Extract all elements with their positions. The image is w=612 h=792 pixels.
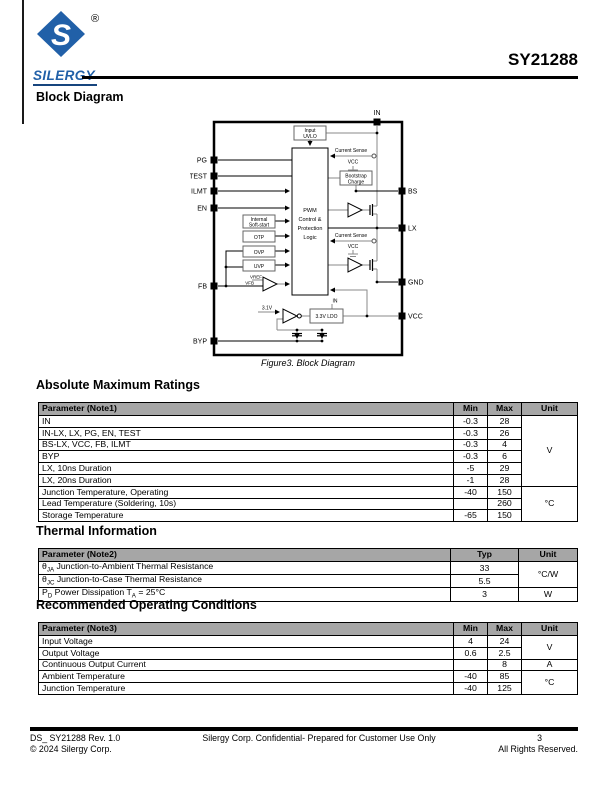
table-cell: LX, 20ns Duration (39, 474, 454, 486)
table-cell: 0.6 (454, 647, 488, 659)
table-cell: °C (522, 486, 578, 521)
table-cell: 150 (488, 486, 522, 498)
table-cell: -0.3 (454, 439, 488, 451)
table-cell: θJC Junction-to-Case Thermal Resistance (39, 575, 451, 588)
block-diagram: IN PG TEST ILMT EN FB BYP BS LX GND VCC … (190, 103, 430, 372)
table-cell (454, 659, 488, 671)
pin-label-pg: PG (197, 158, 207, 165)
table-cell: IN-LX, LX, PG, EN, TEST (39, 427, 454, 439)
rec-op-table: Parameter (Note3)MinMaxUnitInput Voltage… (38, 622, 578, 695)
table-cell: A (522, 659, 578, 671)
pin-label-fb: FB (198, 284, 207, 291)
pin-label-vcc: VCC (408, 314, 423, 321)
footer-rule (30, 727, 578, 731)
table-cell: IN (39, 416, 454, 428)
logo-letter: S (51, 19, 71, 52)
table-cell: -0.3 (454, 416, 488, 428)
table-row: Lead Temperature (Soldering, 10s)260 (39, 498, 578, 510)
label-bootstrap-2: Charge (348, 180, 365, 186)
table-header-cell: Min (454, 403, 488, 416)
table-cell: V (522, 416, 578, 487)
table-cell: -5 (454, 463, 488, 475)
table-cell: 260 (488, 498, 522, 510)
label-pwm-1: PWM (303, 208, 317, 214)
label-otp: OTP (254, 235, 265, 241)
current-sense-tap-bottom (372, 239, 376, 243)
table-cell: -40 (454, 486, 488, 498)
label-vfb: VFB (245, 281, 254, 286)
table-header-cell: Parameter (Note1) (39, 403, 454, 416)
label-ovp: OVP (254, 250, 265, 256)
table-cell: 3 (451, 588, 519, 601)
table-cell: Lead Temperature (Soldering, 10s) (39, 498, 454, 510)
table-row: BYP-0.36 (39, 451, 578, 463)
table-row: θJC Junction-to-Case Thermal Resistance5… (39, 575, 578, 588)
table-cell: V (522, 636, 578, 660)
footer-left: DS_ SY21288 Rev. 1.0 © 2024 Silergy Corp… (30, 733, 200, 756)
pin-label-bs: BS (408, 189, 418, 196)
table-row: IN-LX, LX, PG, EN, TEST-0.326 (39, 427, 578, 439)
pin-label-gnd: GND (408, 280, 424, 287)
label-pwm-3: Protection (298, 226, 323, 232)
table-cell: Junction Temperature (39, 683, 454, 695)
thermal-table: Parameter (Note2)TypUnitθJA Junction-to-… (38, 548, 578, 602)
heading-thermal: Thermal Information (36, 524, 157, 538)
table-cell: 2.5 (488, 647, 522, 659)
footer-rights: All Rights Reserved. (438, 744, 578, 755)
current-sense-tap-top (372, 154, 376, 158)
table-cell: 5.5 (451, 575, 519, 588)
table-cell: 6 (488, 451, 522, 463)
table-row: Output Voltage0.62.5 (39, 647, 578, 659)
figure-caption: Figure3. Block Diagram (261, 358, 356, 368)
table-cell: 26 (488, 427, 522, 439)
pin-label-in: IN (374, 110, 381, 117)
pin-label-byp: BYP (193, 339, 207, 346)
ldo-comparator (283, 309, 297, 323)
page-edge-line (22, 0, 24, 124)
pin-label-lx: LX (408, 226, 417, 233)
silergy-logo-mark: S ® (33, 10, 111, 62)
table-cell: -1 (454, 474, 488, 486)
table-cell: Storage Temperature (39, 510, 454, 522)
table-cell: 4 (454, 636, 488, 648)
table-cell: -0.3 (454, 427, 488, 439)
label-current-sense-bottom: Current Sense (335, 233, 367, 239)
label-uvp: UVP (254, 264, 265, 270)
heading-abs-max: Absolute Maximum Ratings (36, 378, 200, 392)
footer: DS_ SY21288 Rev. 1.0 © 2024 Silergy Corp… (30, 733, 578, 756)
table-cell (454, 498, 488, 510)
footer-confidential: Silergy Corp. Confidential- Prepared for… (200, 733, 438, 756)
table-row: θJA Junction-to-Ambient Thermal Resistan… (39, 562, 578, 575)
table-header-row: Parameter (Note1)MinMaxUnit (39, 403, 578, 416)
heading-rec-op: Recommended Operating Conditions (36, 598, 257, 612)
table-cell: Ambient Temperature (39, 671, 454, 683)
footer-copyright: © 2024 Silergy Corp. (30, 744, 200, 755)
table-row: Continuous Output Current8A (39, 659, 578, 671)
table-cell: Input Voltage (39, 636, 454, 648)
table-cell: Junction Temperature, Operating (39, 486, 454, 498)
table-row: Storage Temperature-65150 (39, 510, 578, 522)
table-header-cell: Unit (522, 623, 578, 636)
label-vcc-top: VCC (348, 160, 359, 166)
table-row: LX, 10ns Duration-529 (39, 463, 578, 475)
table-header-cell: Max (488, 623, 522, 636)
table-cell: 85 (488, 671, 522, 683)
silergy-logo: S ® SILERGY (33, 10, 153, 86)
table-header-cell: Unit (522, 403, 578, 416)
table-header-cell: Typ (451, 549, 519, 562)
table-cell: -0.3 (454, 451, 488, 463)
table-cell: -40 (454, 683, 488, 695)
table-cell: BYP (39, 451, 454, 463)
table-header-cell: Parameter (Note2) (39, 549, 451, 562)
table-cell: 28 (488, 416, 522, 428)
label-pwm-2: Control & (299, 217, 322, 223)
label-ldo-in: IN (333, 299, 338, 305)
table-header-cell: Min (454, 623, 488, 636)
footer-right: 3 All Rights Reserved. (438, 733, 578, 756)
footer-page-number: 3 (438, 733, 578, 744)
table-cell: 8 (488, 659, 522, 671)
label-softstart-2: Soft-start (249, 223, 270, 229)
table-header-row: Parameter (Note3)MinMaxUnit (39, 623, 578, 636)
table-row: LX, 20ns Duration-128 (39, 474, 578, 486)
label-ldo: 3.3V LDO (316, 314, 338, 320)
table-row: IN-0.328V (39, 416, 578, 428)
header-rule (82, 76, 578, 79)
table-cell: BS-LX, VCC, FB, ILMT (39, 439, 454, 451)
table-row: BS-LX, VCC, FB, ILMT-0.34 (39, 439, 578, 451)
gate-driver-bottom (348, 258, 362, 272)
heading-block-diagram: Block Diagram (36, 90, 124, 104)
pin-label-en: EN (197, 206, 207, 213)
error-comparator (263, 277, 277, 291)
table-row: Ambient Temperature-4085°C (39, 671, 578, 683)
label-pwm-4: Logic (303, 235, 316, 241)
table-cell: 150 (488, 510, 522, 522)
table-cell: -65 (454, 510, 488, 522)
table-header-cell: Parameter (Note3) (39, 623, 454, 636)
table-row: Junction Temperature, Operating-40150°C (39, 486, 578, 498)
pin-label-ilmt: ILMT (191, 189, 208, 196)
comparator-bubble (297, 314, 301, 318)
part-number-title: SY21288 (508, 50, 578, 70)
registered-mark: ® (91, 13, 99, 25)
abs-max-table: Parameter (Note1)MinMaxUnitIN-0.328VIN-L… (38, 402, 578, 522)
table-cell: -40 (454, 671, 488, 683)
table-cell: 33 (451, 562, 519, 575)
table-header-cell: Unit (519, 549, 578, 562)
table-cell: Continuous Output Current (39, 659, 454, 671)
table-cell: 125 (488, 683, 522, 695)
table-cell: W (519, 588, 578, 601)
table-cell: LX, 10ns Duration (39, 463, 454, 475)
datasheet-page: S ® SILERGY SY21288 Block Diagram (0, 0, 612, 792)
label-vcc-bottom: VCC (348, 244, 359, 250)
footer-doc-id: DS_ SY21288 Rev. 1.0 (30, 733, 200, 744)
table-cell: θJA Junction-to-Ambient Thermal Resistan… (39, 562, 451, 575)
pin-label-test: TEST (190, 174, 208, 181)
table-row: Input Voltage424V (39, 636, 578, 648)
label-3v1: 3.1V (262, 306, 273, 312)
table-cell: Output Voltage (39, 647, 454, 659)
table-cell: 29 (488, 463, 522, 475)
table-cell: °C (522, 671, 578, 695)
table-cell: 4 (488, 439, 522, 451)
table-row: Junction Temperature-40125 (39, 683, 578, 695)
table-header-row: Parameter (Note2)TypUnit (39, 549, 578, 562)
table-header-cell: Max (488, 403, 522, 416)
table-cell: °C/W (519, 562, 578, 588)
label-current-sense-top: Current Sense (335, 148, 367, 154)
label-vref: VREF (250, 275, 262, 280)
table-cell: 28 (488, 474, 522, 486)
gate-driver-top (348, 203, 362, 217)
table-cell: 24 (488, 636, 522, 648)
label-uvlo-2: UVLO (303, 134, 317, 140)
